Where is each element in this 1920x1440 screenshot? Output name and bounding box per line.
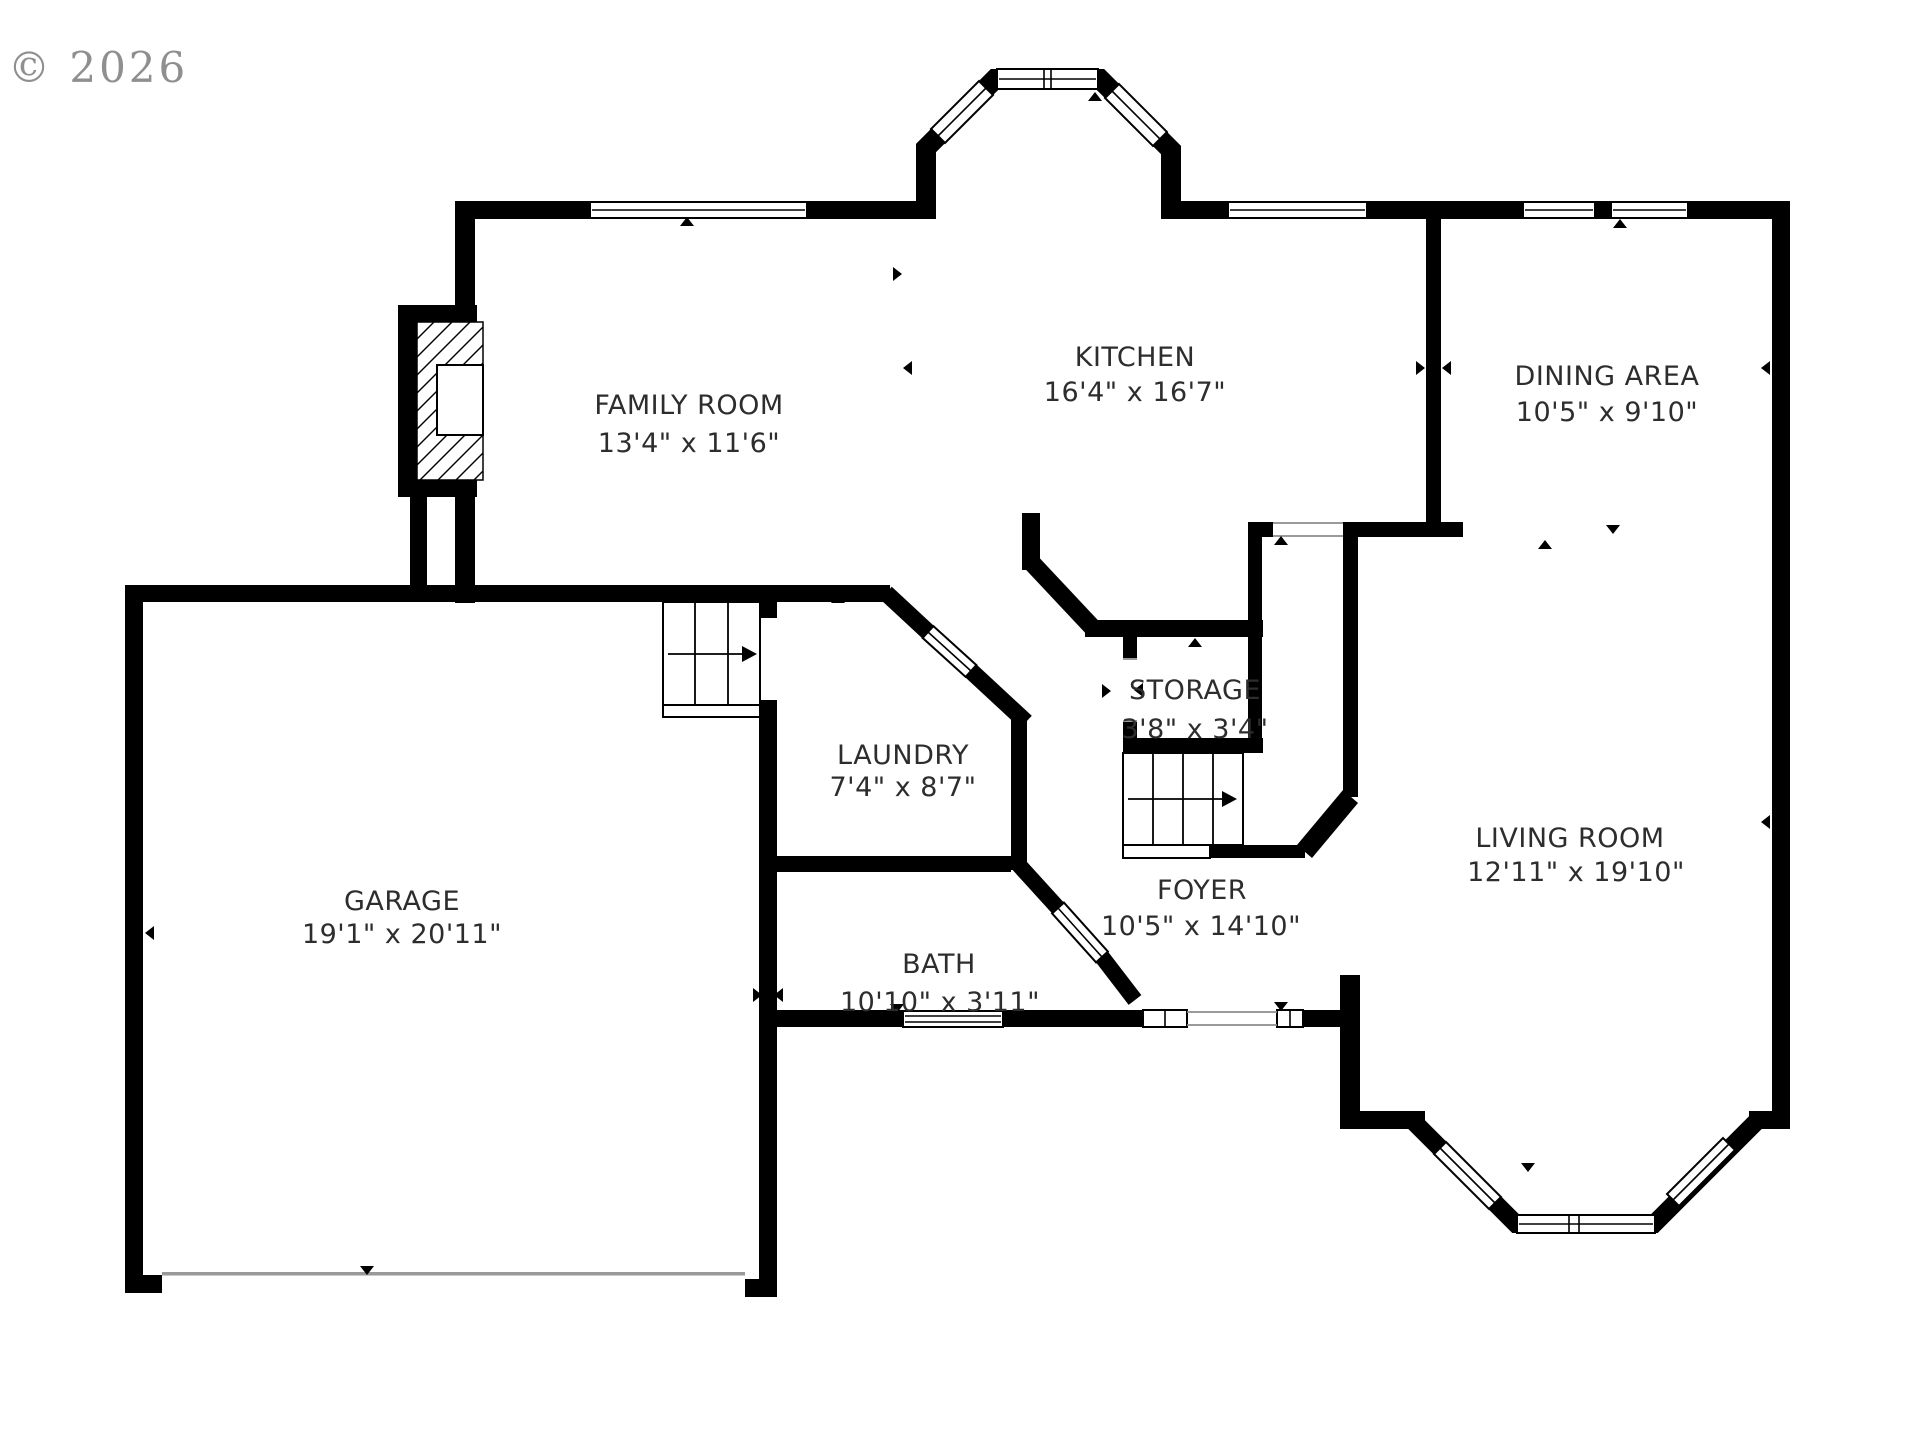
family-room-dims: 13'4" x 11'6" — [598, 428, 780, 459]
marker-right-icon — [1102, 684, 1111, 698]
storage-dims: 3'8" x 3'4" — [1121, 714, 1268, 745]
interior-walls — [768, 219, 1463, 1000]
marker-right-icon — [1416, 361, 1425, 375]
garage-dims: 19'1" x 20'11" — [302, 919, 502, 950]
copyright-watermark: © 2026 — [8, 43, 188, 92]
laundry-label: LAUNDRY — [837, 740, 969, 771]
stairs-foyer — [1123, 753, 1243, 858]
foyer-label: FOYER — [1157, 875, 1247, 906]
laundry-dims: 7'4" x 8'7" — [829, 772, 976, 803]
marker-up-icon — [1188, 638, 1202, 647]
foyer-dims: 10'5" x 14'10" — [1101, 911, 1301, 942]
marker-left-icon — [903, 361, 912, 375]
stairs-garage — [663, 602, 760, 717]
fireplace — [398, 305, 483, 497]
floor-plan-canvas: FAMILY ROOM 13'4" x 11'6" KITCHEN 16'4" … — [0, 0, 1920, 1440]
garage-label: GARAGE — [344, 886, 460, 917]
dining-area-label: DINING AREA — [1515, 361, 1700, 392]
marker-left-icon — [1761, 361, 1770, 375]
living-room-label: LIVING ROOM — [1475, 823, 1664, 854]
living-room-dims: 12'11" x 19'10" — [1467, 857, 1685, 888]
firebox — [437, 365, 483, 435]
garage-door — [162, 1272, 745, 1276]
floor-plan-page: FAMILY ROOM 13'4" x 11'6" KITCHEN 16'4" … — [0, 0, 1920, 1440]
family-room-label: FAMILY ROOM — [594, 390, 783, 421]
markers — [145, 92, 1770, 1275]
marker-down-icon — [1606, 525, 1620, 534]
marker-up-icon — [1274, 536, 1288, 545]
marker-right-icon — [893, 267, 902, 281]
kitchen-label: KITCHEN — [1075, 342, 1196, 373]
bath-dims: 10'10" x 3'11" — [840, 987, 1040, 1018]
marker-left-icon — [1761, 815, 1770, 829]
marker-up-icon — [1613, 219, 1627, 228]
kitchen-dims: 16'4" x 16'7" — [1044, 377, 1226, 408]
marker-left-icon — [1442, 361, 1451, 375]
bath-label: BATH — [902, 949, 976, 980]
marker-up-icon — [1538, 540, 1552, 549]
marker-down-icon — [1521, 1163, 1535, 1172]
marker-up-icon — [1088, 92, 1102, 101]
storage-label: STORAGE — [1129, 675, 1261, 706]
room-labels: FAMILY ROOM 13'4" x 11'6" KITCHEN 16'4" … — [302, 342, 1699, 1018]
marker-left-icon — [145, 926, 154, 940]
exterior-walls — [125, 79, 1790, 1297]
dining-area-dims: 10'5" x 9'10" — [1516, 397, 1698, 428]
